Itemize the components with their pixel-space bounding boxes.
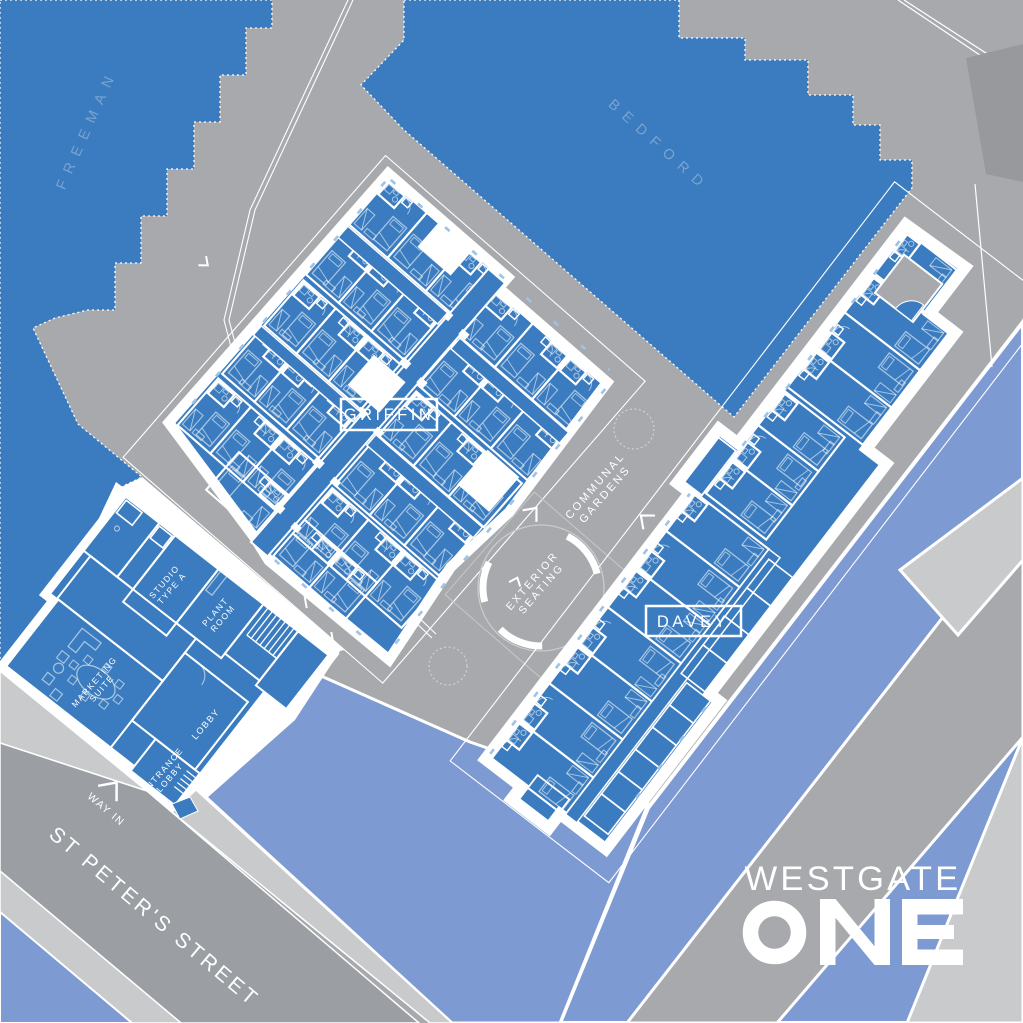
svg-text:DAVEY: DAVEY — [657, 613, 729, 631]
svg-text:GRIFFIN: GRIFFIN — [344, 406, 435, 424]
svg-text:WESTGATE: WESTGATE — [745, 860, 962, 898]
